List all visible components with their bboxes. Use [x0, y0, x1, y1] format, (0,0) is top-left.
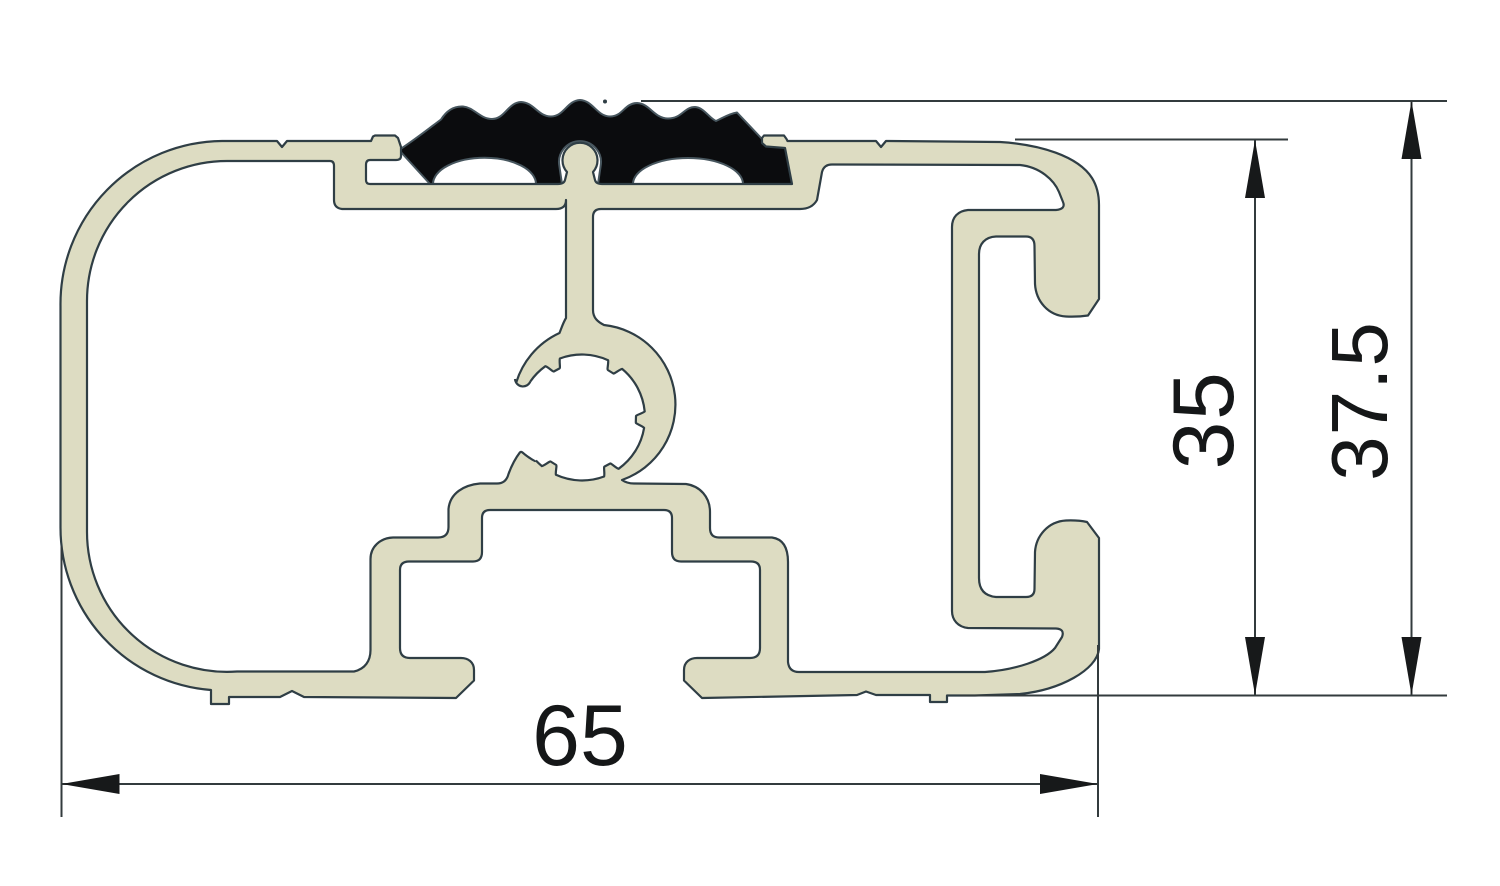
svg-text:65: 65: [532, 688, 628, 784]
svg-text:37.5: 37.5: [1315, 321, 1404, 481]
svg-text:35: 35: [1156, 371, 1252, 470]
